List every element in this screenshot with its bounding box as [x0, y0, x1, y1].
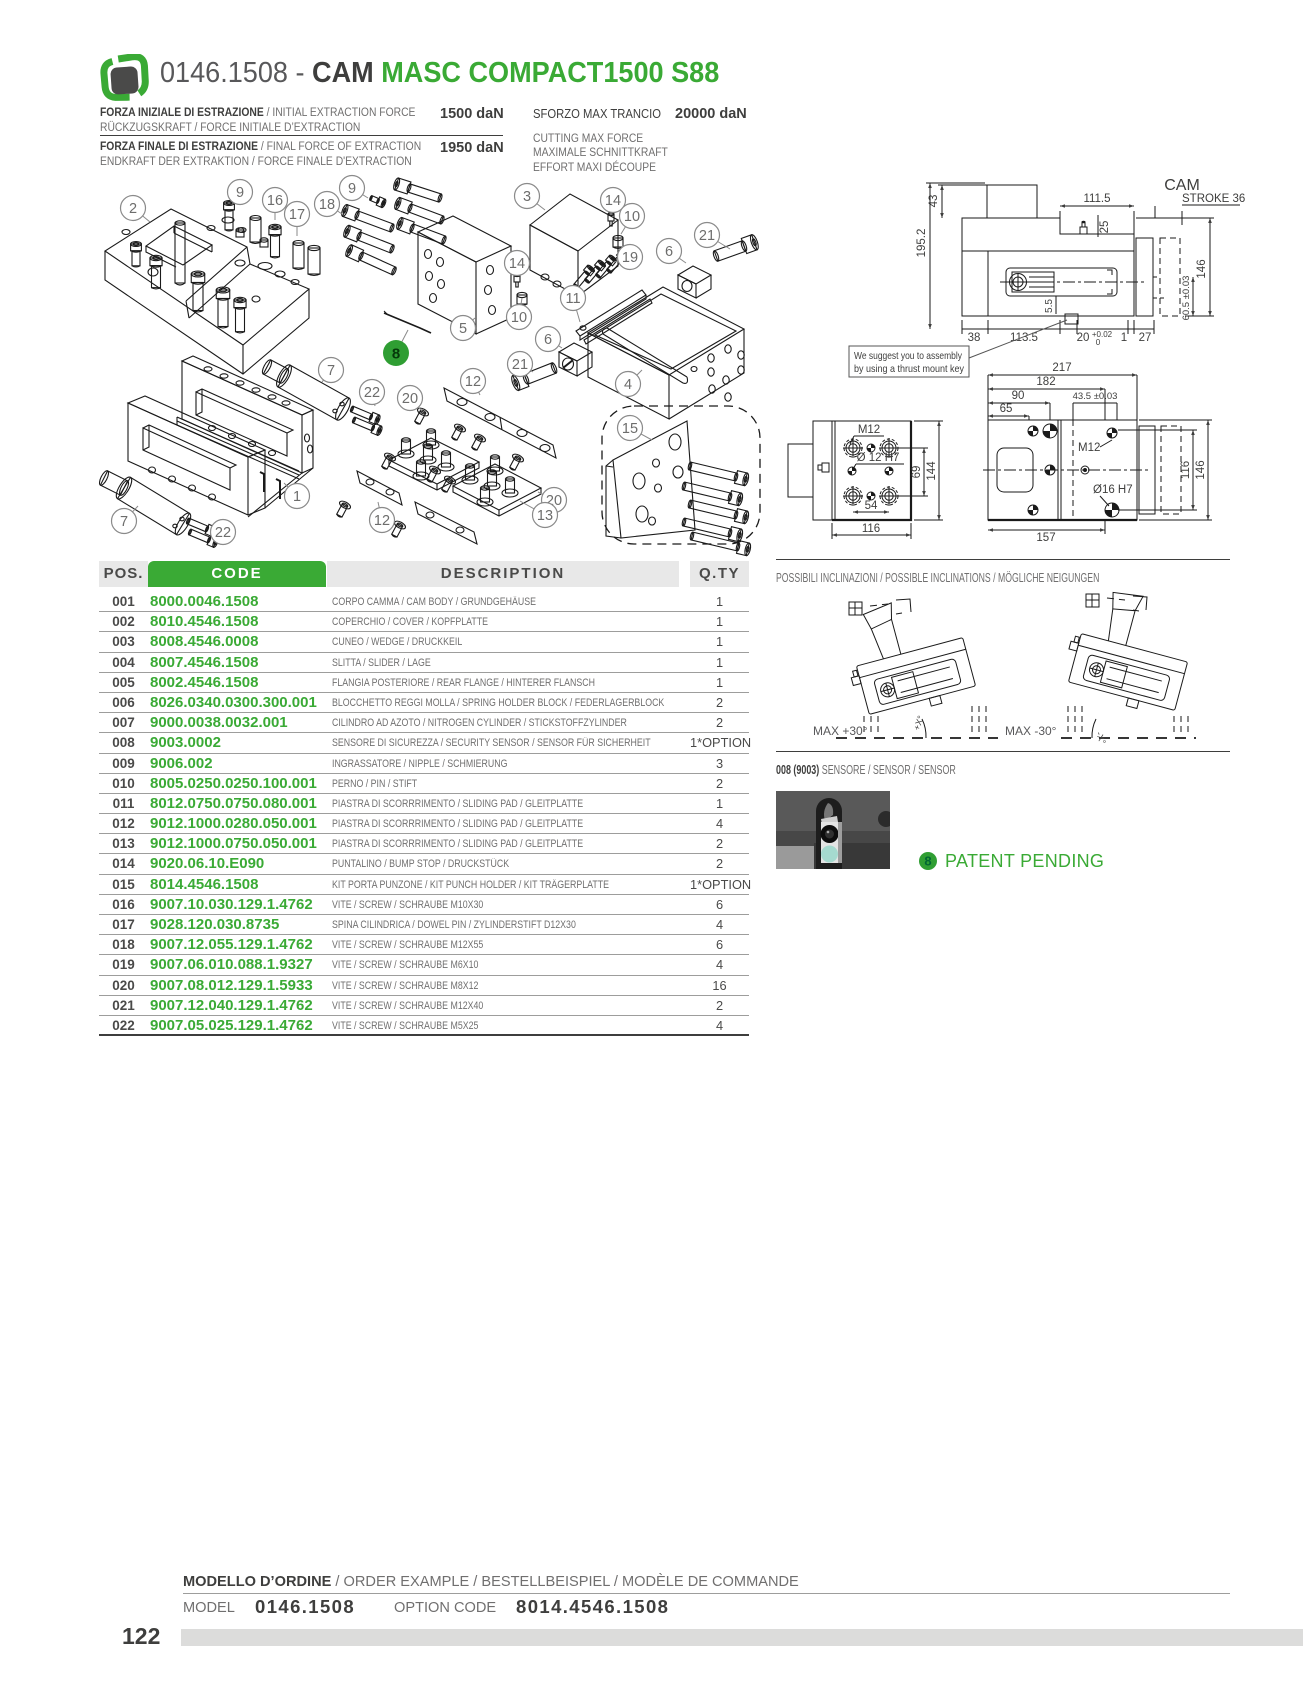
svg-text:19: 19: [622, 250, 638, 266]
svg-text:217: 217: [1052, 362, 1071, 374]
svg-text:CAM: CAM: [1164, 177, 1200, 194]
svg-text:5: 5: [459, 321, 467, 337]
svg-text:43.5 ±0.03: 43.5 ±0.03: [1073, 391, 1118, 402]
svg-text:21: 21: [699, 228, 715, 244]
svg-text:9: 9: [236, 185, 244, 201]
svg-text:16: 16: [267, 193, 283, 209]
svg-text:STROKE 36: STROKE 36: [1182, 193, 1245, 205]
svg-text:1: 1: [293, 489, 301, 505]
svg-text:15: 15: [622, 421, 638, 437]
svg-text:M12: M12: [858, 424, 880, 436]
svg-text:8: 8: [392, 346, 400, 363]
svg-text:-X°: -X°: [1094, 730, 1108, 746]
svg-text:4: 4: [624, 377, 632, 393]
svg-text:14: 14: [605, 193, 621, 209]
svg-text:7: 7: [120, 514, 128, 530]
svg-text:116: 116: [862, 523, 880, 535]
svg-text:111.5: 111.5: [1083, 193, 1110, 205]
svg-text:146: 146: [1195, 460, 1207, 479]
svg-text:+X°: +X°: [911, 714, 926, 732]
svg-text:54: 54: [865, 500, 878, 512]
svg-text:6: 6: [665, 244, 673, 260]
svg-text:20: 20: [402, 391, 418, 407]
svg-text:12: 12: [374, 513, 390, 529]
svg-text:13: 13: [537, 508, 553, 524]
svg-text:65: 65: [1000, 403, 1013, 415]
svg-text:Ø16 H7: Ø16 H7: [1093, 484, 1133, 496]
svg-text:2: 2: [129, 201, 137, 217]
svg-text:69: 69: [911, 466, 923, 479]
svg-text:0: 0: [1096, 338, 1101, 347]
svg-text:7: 7: [327, 363, 335, 379]
svg-text:11: 11: [565, 291, 580, 307]
svg-text:20: 20: [1077, 332, 1090, 344]
svg-text:146: 146: [1196, 259, 1208, 278]
svg-text:22: 22: [364, 385, 380, 401]
svg-text:6: 6: [544, 332, 552, 348]
svg-text:17: 17: [289, 207, 305, 223]
svg-text:116: 116: [1180, 461, 1192, 479]
svg-text:MAX -30°: MAX -30°: [1005, 724, 1057, 738]
svg-text:8: 8: [924, 854, 931, 869]
svg-text:21: 21: [512, 357, 528, 373]
svg-text:182: 182: [1036, 376, 1055, 388]
svg-text:5.5: 5.5: [1044, 299, 1055, 313]
svg-text:9: 9: [348, 181, 356, 197]
svg-text:60.5 ±0.03: 60.5 ±0.03: [1181, 276, 1192, 321]
svg-text:M12: M12: [1078, 442, 1100, 454]
svg-text:10: 10: [624, 209, 640, 225]
svg-text:25: 25: [1099, 221, 1111, 234]
svg-text:90: 90: [1012, 390, 1025, 402]
svg-text:Ø 12 H7: Ø 12 H7: [857, 452, 900, 464]
svg-text:MAX +30°: MAX +30°: [813, 724, 868, 738]
svg-text:22: 22: [215, 525, 231, 541]
svg-text:144: 144: [926, 461, 938, 481]
svg-text:38: 38: [968, 332, 981, 344]
svg-text:12: 12: [465, 374, 481, 390]
svg-text:3: 3: [523, 189, 531, 205]
svg-text:157: 157: [1036, 532, 1055, 544]
svg-text:195.2: 195.2: [916, 229, 928, 258]
svg-text:27: 27: [1139, 332, 1152, 344]
svg-text:14: 14: [509, 256, 525, 272]
svg-text:113.5: 113.5: [1010, 332, 1038, 344]
svg-text:1: 1: [1121, 332, 1127, 344]
svg-text:18: 18: [319, 197, 335, 213]
svg-text:10: 10: [511, 310, 527, 326]
